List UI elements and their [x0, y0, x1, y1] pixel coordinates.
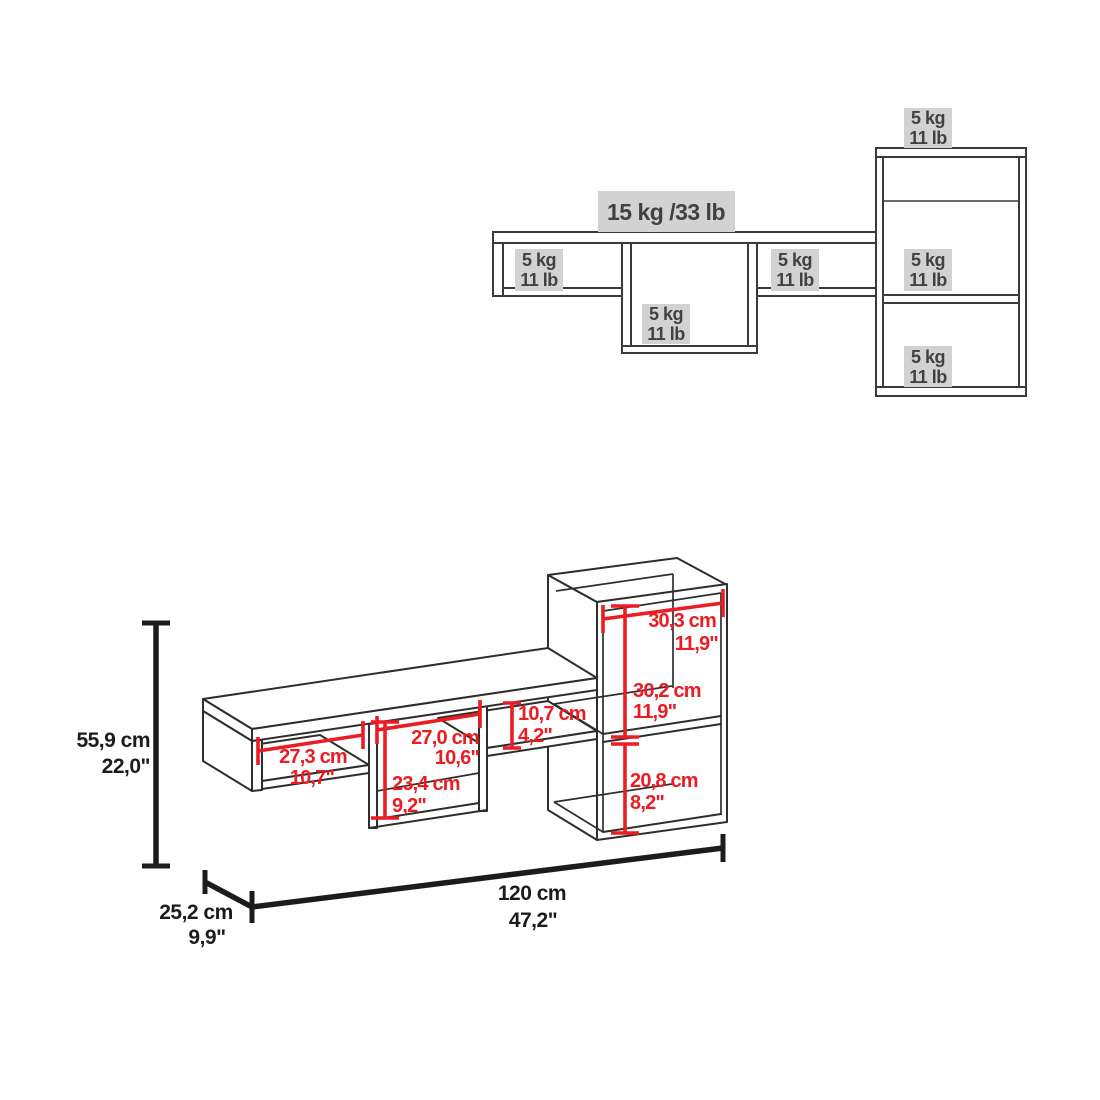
- front-cabinet-right-wall: [1019, 157, 1026, 396]
- dim-text-cm: 27,0 cm: [411, 727, 479, 749]
- dim-text-cm: 20,8 cm: [630, 770, 698, 792]
- dim-text-inch: 11,9": [633, 701, 677, 723]
- front-cabinet-middle-shelf: [883, 295, 1019, 303]
- overall-height-cm: 55,9 cm: [76, 729, 150, 752]
- front-view-diagram: 15 kg /33 lb 5 kg 11 lb 5 kg 11 lb 5 kg …: [493, 108, 1026, 396]
- weight-capacity-label-right-shelf: 5 kg 11 lb: [771, 249, 819, 291]
- dim-text-cm: 23,4 cm: [392, 773, 460, 795]
- dim-text-inch: 9,2": [392, 795, 426, 817]
- capacity-kg: 5 kg: [911, 250, 945, 270]
- weight-capacity-label-left-shelf: 5 kg 11 lb: [515, 249, 563, 291]
- front-midbox-left-wall: [622, 243, 631, 353]
- capacity-kg: 5 kg: [911, 108, 945, 128]
- overall-width-cm: 120 cm: [498, 882, 566, 905]
- overall-width-inch: 47,2": [509, 909, 557, 932]
- capacity-lb: 11 lb: [647, 324, 685, 344]
- dim-text-inch: 10,6": [435, 747, 480, 769]
- dim-text-cm: 30,3 cm: [648, 610, 716, 632]
- capacity-lb: 11 lb: [520, 270, 558, 290]
- dim-text-inch: 4,2": [518, 725, 552, 747]
- front-midbox-bottom: [622, 346, 757, 353]
- weight-capacity-label-cabinet-middle: 5 kg 11 lb: [904, 249, 952, 291]
- overall-height-inch: 22,0": [102, 755, 150, 778]
- weight-capacity-label-middle-box: 5 kg 11 lb: [642, 304, 690, 344]
- dim-text-cm: 10,7 cm: [518, 703, 586, 725]
- front-left-wall: [493, 243, 503, 296]
- dim-text-inch: 8,2": [630, 792, 664, 814]
- capacity-kg: 5 kg: [778, 250, 812, 270]
- overall-depth-inch: 9,9": [188, 926, 225, 949]
- dim-text-cm: 27,3 cm: [279, 746, 347, 768]
- capacity-kg: 5 kg: [911, 347, 945, 367]
- product-dimension-sheet: 15 kg /33 lb 5 kg 11 lb 5 kg 11 lb 5 kg …: [0, 0, 1100, 1100]
- weight-capacity-label-cabinet-bottom: 5 kg 11 lb: [904, 346, 952, 387]
- dimension-diagram-svg: 15 kg /33 lb 5 kg 11 lb 5 kg 11 lb 5 kg …: [0, 0, 1100, 1100]
- capacity-lb: 11 lb: [776, 270, 814, 290]
- front-top-board: [493, 232, 876, 243]
- dim-text-cm: 30,2 cm: [633, 680, 701, 702]
- capacity-lb: 11 lb: [909, 128, 947, 148]
- front-cabinet-top: [876, 148, 1026, 157]
- front-cabinet-left-wall: [876, 157, 883, 396]
- front-cabinet-bottom: [876, 387, 1026, 396]
- overall-depth-cm: 25,2 cm: [159, 901, 233, 924]
- dim-overall-depth: 25,2 cm 9,9": [159, 870, 252, 949]
- capacity-kg: 5 kg: [522, 250, 556, 270]
- dim-overall-height: 55,9 cm 22,0": [76, 623, 170, 866]
- weight-capacity-label-cabinet-top: 5 kg 11 lb: [904, 108, 952, 148]
- dim-overall-width: 120 cm 47,2": [252, 834, 723, 932]
- iso-view-diagram: 27,3 cm 10,7" 27,0 cm 10,6" 23,4 cm 9,2"…: [76, 558, 727, 949]
- weight-capacity-label-main: 15 kg /33 lb: [598, 191, 735, 232]
- capacity-lb: 11 lb: [909, 270, 947, 290]
- dim-text-inch: 10,7": [290, 767, 335, 789]
- capacity-lb: 11 lb: [909, 367, 947, 387]
- capacity-kg: 5 kg: [649, 304, 683, 324]
- front-midbox-right-wall: [748, 243, 757, 353]
- main-capacity-text: 15 kg /33 lb: [607, 199, 725, 225]
- dim-text-inch: 11,9": [675, 633, 719, 655]
